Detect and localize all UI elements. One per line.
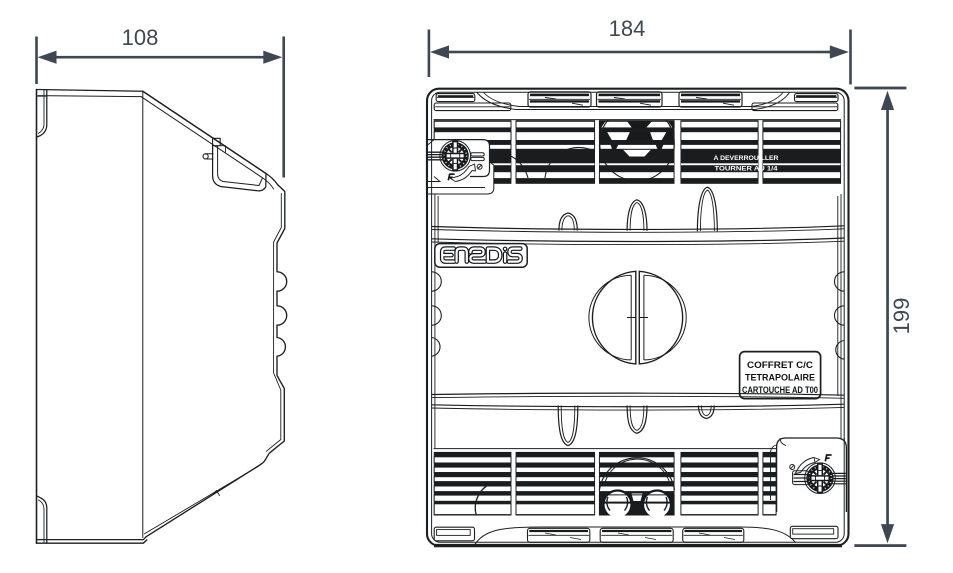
svg-text:COFFRET C/C: COFFRET C/C xyxy=(747,360,813,371)
svg-text:108: 108 xyxy=(122,25,159,50)
svg-text:A DEVERROUILLER: A DEVERROUILLER xyxy=(714,155,779,162)
svg-text:184: 184 xyxy=(609,16,646,41)
svg-text:199: 199 xyxy=(889,298,914,335)
svg-text:TETRAPOLAIRE: TETRAPOLAIRE xyxy=(745,373,815,384)
